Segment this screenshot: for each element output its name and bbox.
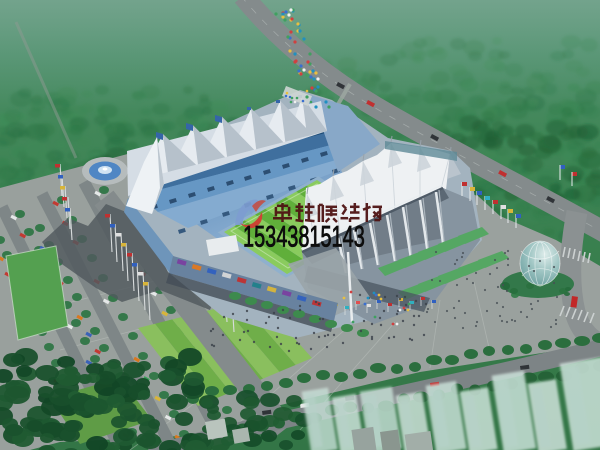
svg-text:15343815143: 15343815143: [243, 221, 365, 254]
